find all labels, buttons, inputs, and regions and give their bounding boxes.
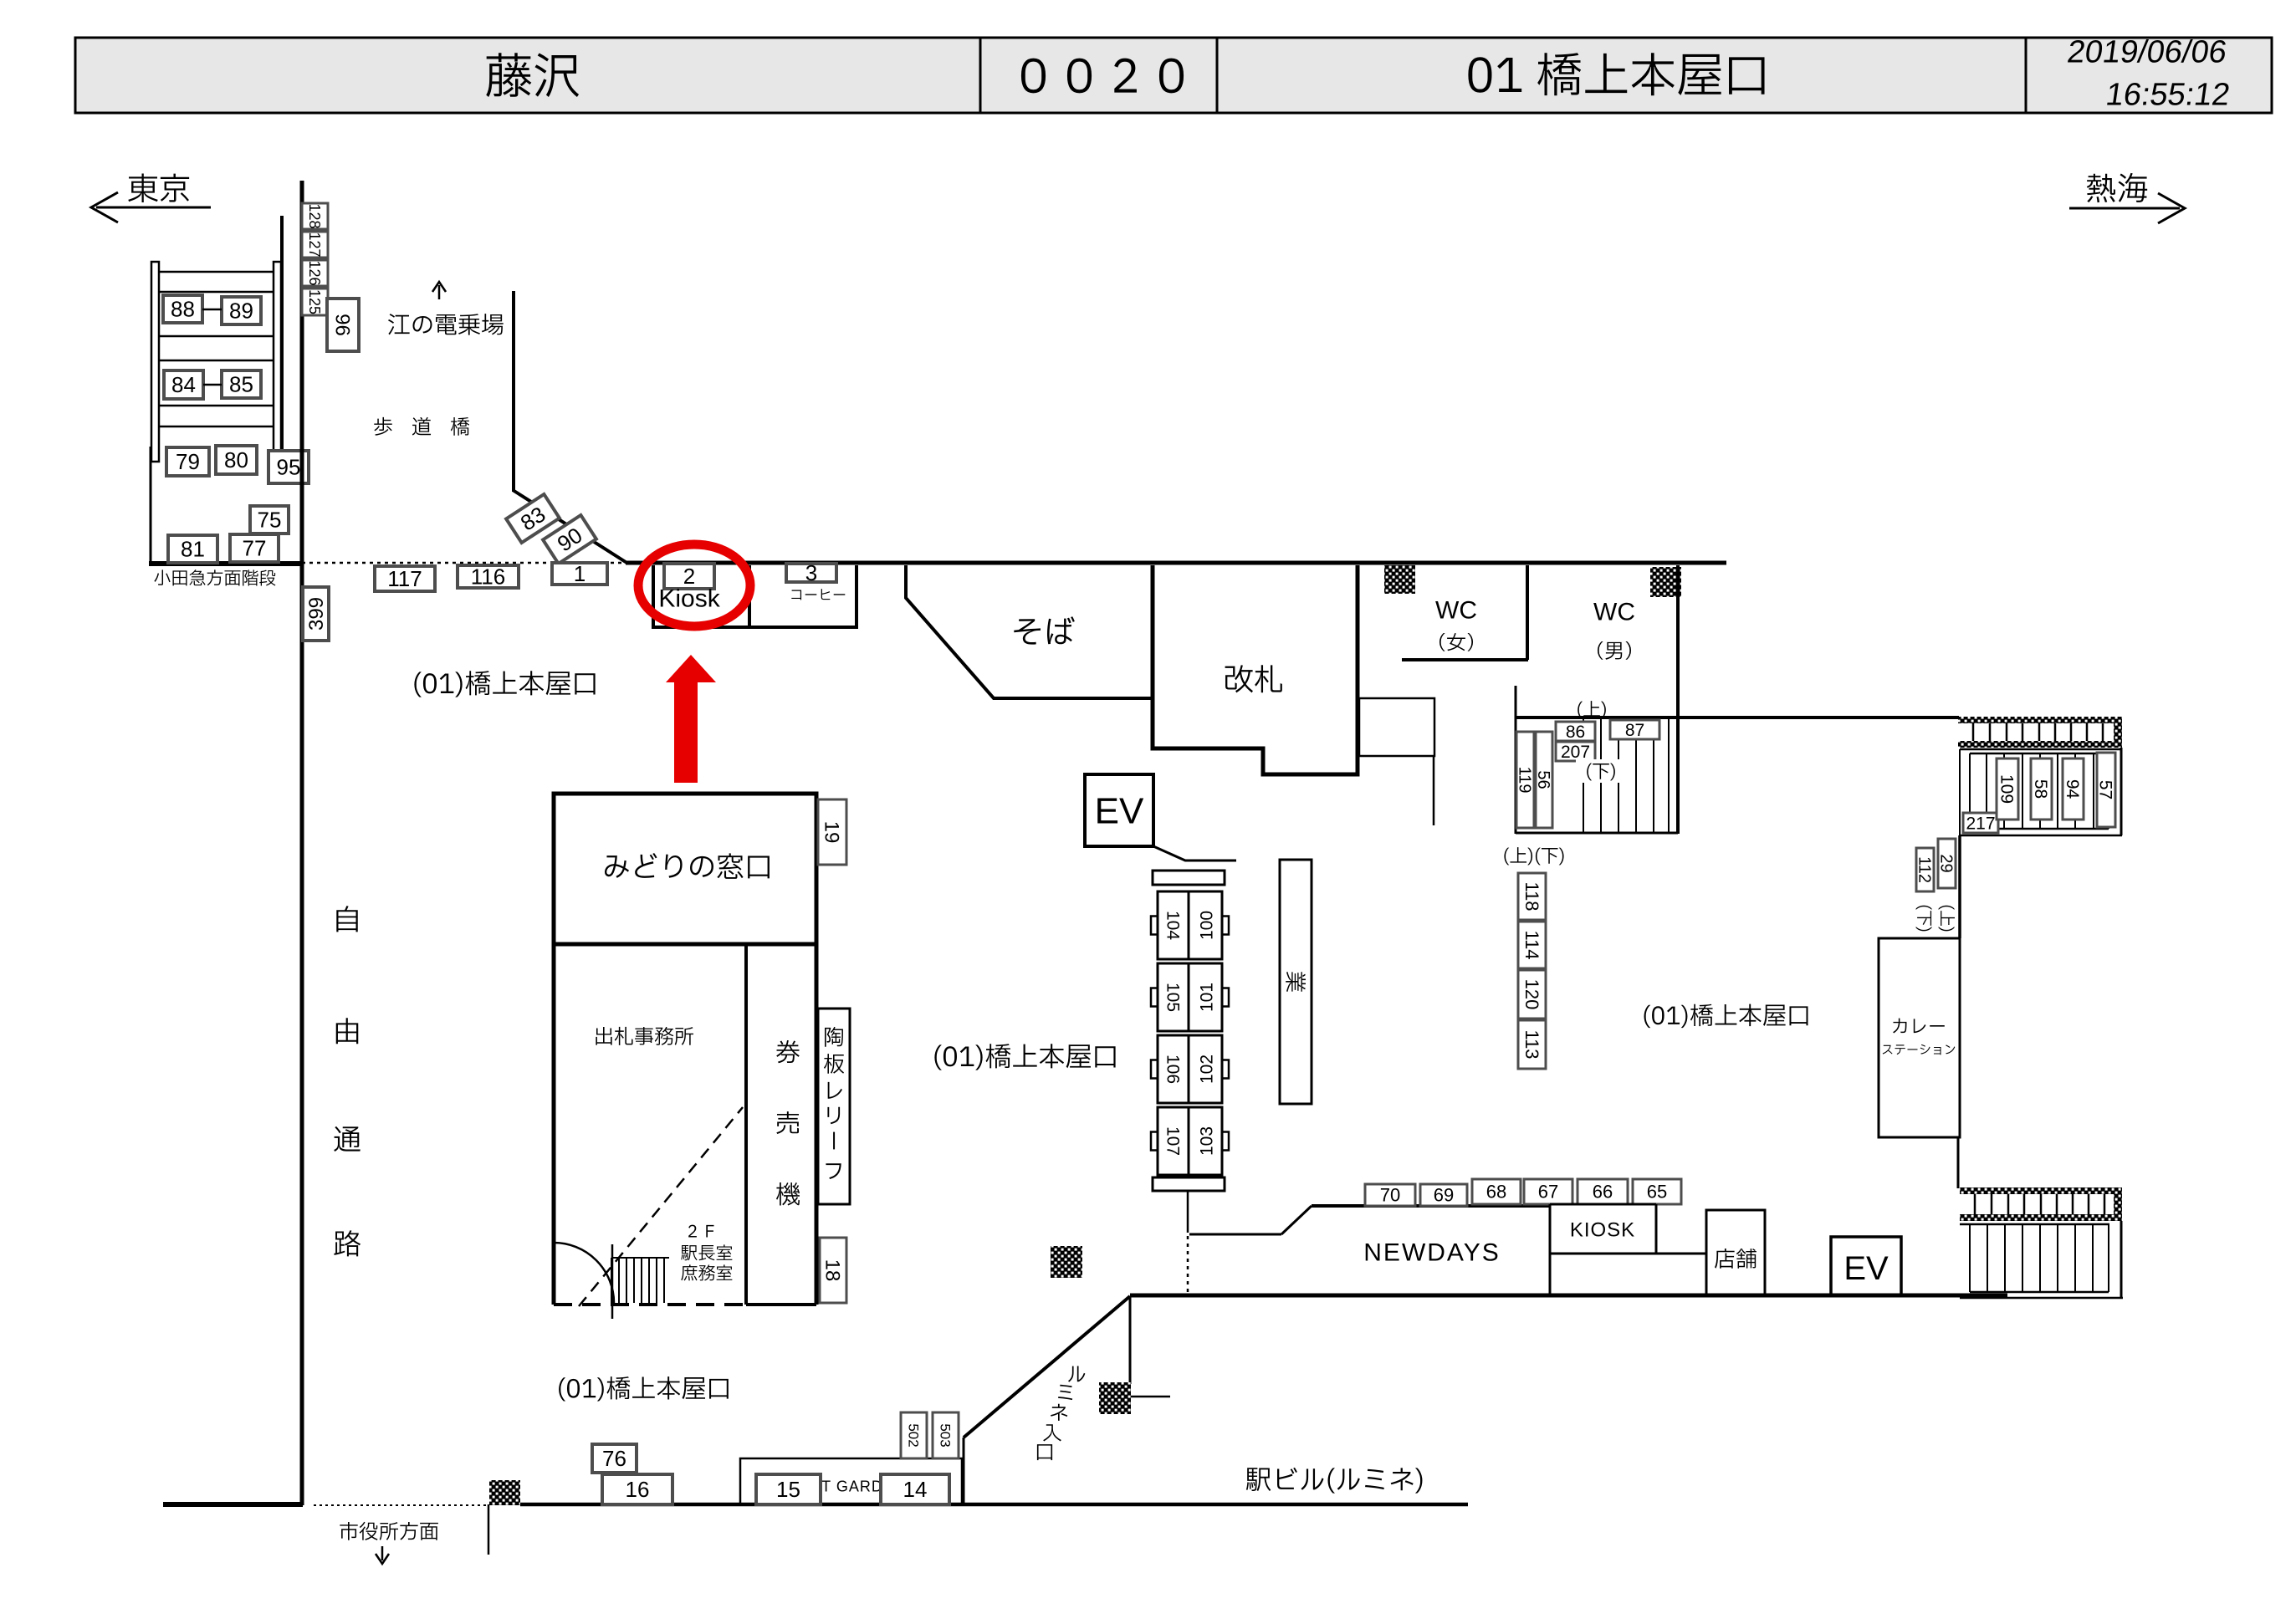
svg-text:113: 113 [1521, 1029, 1542, 1059]
svg-text:100: 100 [1197, 911, 1216, 940]
svg-text:118: 118 [1521, 881, 1542, 911]
svg-text:75: 75 [258, 508, 282, 533]
svg-text:88: 88 [171, 297, 195, 322]
svg-text:120: 120 [1521, 979, 1542, 1010]
svg-text:NEWDAYS: NEWDAYS [1363, 1239, 1500, 1267]
svg-text:18: 18 [821, 1259, 844, 1282]
svg-text:207: 207 [1561, 743, 1590, 762]
svg-text:89: 89 [229, 299, 253, 324]
svg-text:68: 68 [1486, 1182, 1506, 1203]
svg-text:57: 57 [2096, 780, 2115, 799]
svg-text:101: 101 [1197, 983, 1216, 1012]
svg-text:56: 56 [1534, 770, 1552, 789]
svg-text:67: 67 [1538, 1182, 1558, 1203]
svg-text:114: 114 [1521, 930, 1542, 959]
svg-text:399: 399 [305, 597, 328, 631]
svg-text:EV: EV [1843, 1250, 1889, 1287]
svg-text:3: 3 [805, 560, 817, 585]
svg-text:107: 107 [1163, 1126, 1183, 1156]
svg-text:84: 84 [171, 372, 196, 397]
svg-text:94: 94 [2063, 779, 2082, 799]
svg-text:81: 81 [181, 537, 205, 562]
svg-text:80: 80 [224, 447, 248, 472]
svg-text:128: 128 [306, 203, 323, 228]
svg-text:EV: EV [1095, 790, 1144, 831]
svg-text:106: 106 [1163, 1055, 1183, 1084]
svg-text:Kiosk: Kiosk [658, 585, 720, 613]
svg-text:15: 15 [776, 1477, 800, 1502]
svg-text:69: 69 [1434, 1185, 1454, 1206]
svg-text:102: 102 [1197, 1055, 1216, 1084]
svg-text:70: 70 [1380, 1185, 1400, 1206]
svg-text:217: 217 [1966, 814, 1995, 833]
svg-text:109: 109 [1997, 774, 2017, 804]
svg-text:58: 58 [2031, 779, 2050, 799]
svg-text:87: 87 [1625, 721, 1644, 740]
svg-text:116: 116 [471, 564, 505, 590]
svg-text:WC: WC [1593, 599, 1635, 626]
svg-text:119: 119 [1516, 767, 1534, 794]
svg-text:65: 65 [1647, 1182, 1667, 1203]
svg-text:112: 112 [1915, 856, 1934, 883]
svg-text:WC: WC [1435, 597, 1477, 625]
svg-text:502: 502 [906, 1423, 922, 1447]
svg-text:105: 105 [1163, 983, 1183, 1012]
svg-text:95: 95 [277, 455, 301, 480]
svg-text:117: 117 [387, 566, 422, 591]
svg-text:96: 96 [331, 314, 354, 336]
svg-text:127: 127 [306, 232, 323, 257]
svg-text:16: 16 [626, 1477, 650, 1502]
svg-text:14: 14 [903, 1477, 928, 1502]
svg-text:29: 29 [1937, 854, 1956, 872]
svg-text:66: 66 [1593, 1182, 1613, 1203]
svg-text:19: 19 [821, 821, 843, 844]
svg-text:103: 103 [1197, 1126, 1216, 1156]
svg-text:79: 79 [176, 449, 200, 474]
svg-text:125: 125 [306, 289, 323, 314]
svg-text:85: 85 [229, 372, 253, 397]
svg-text:77: 77 [243, 536, 267, 561]
svg-text:2019/06/06: 2019/06/06 [2065, 33, 2229, 69]
svg-text:86: 86 [1566, 723, 1585, 742]
svg-text:126: 126 [306, 260, 323, 285]
svg-text:16:55:12: 16:55:12 [2104, 76, 2232, 112]
svg-text:KIOSK: KIOSK [1570, 1218, 1635, 1241]
svg-text:76: 76 [602, 1446, 626, 1471]
svg-text:503: 503 [938, 1423, 954, 1447]
svg-text:104: 104 [1163, 911, 1183, 940]
svg-text:1: 1 [574, 561, 586, 586]
